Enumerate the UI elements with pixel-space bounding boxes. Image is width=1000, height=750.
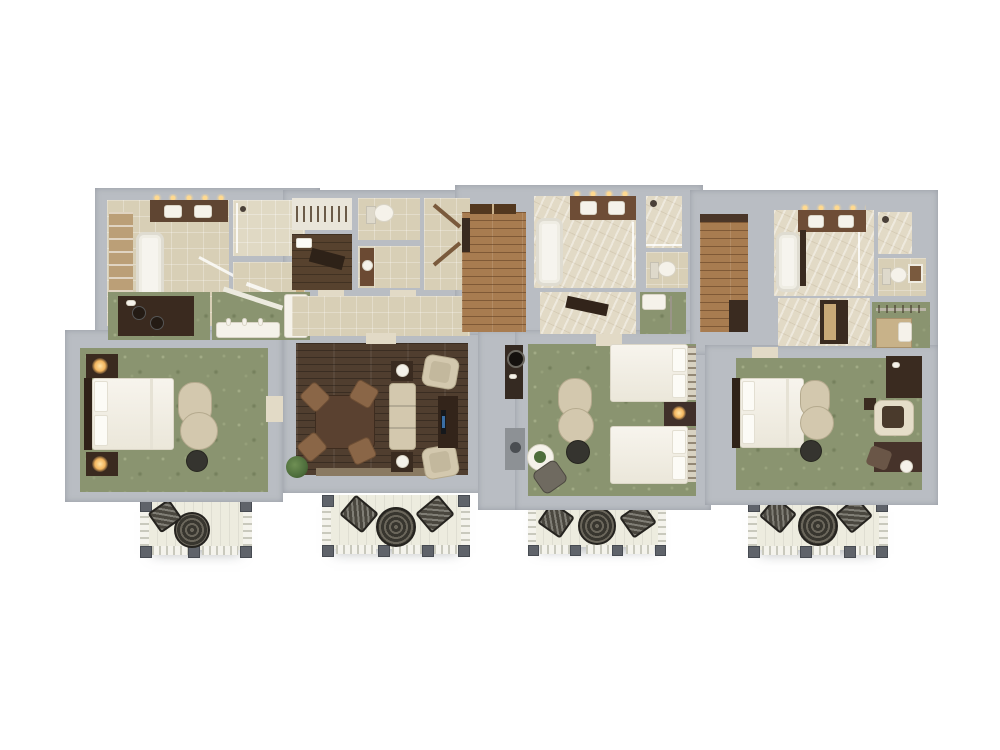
pillow <box>672 430 686 454</box>
sink <box>608 201 625 215</box>
balcony-post <box>140 546 152 558</box>
pillow <box>94 415 108 446</box>
faucet <box>242 318 247 326</box>
balcony-left <box>140 500 252 558</box>
balcony-post <box>800 546 812 558</box>
balcony-railing <box>658 505 666 549</box>
ottoman <box>186 450 208 472</box>
shower-head <box>240 206 246 212</box>
balcony-railing <box>762 546 798 555</box>
ottoman <box>566 440 590 464</box>
balcony-post <box>458 545 470 557</box>
sink <box>194 205 212 218</box>
armchair-cushion <box>428 450 451 473</box>
table-lamp <box>396 455 409 468</box>
pillow <box>672 456 686 480</box>
dresser <box>886 356 922 398</box>
pillow <box>94 381 108 412</box>
door-opening <box>752 347 778 358</box>
hangers <box>878 305 924 313</box>
balcony-post <box>240 546 252 558</box>
balcony-railing <box>202 546 238 555</box>
sink <box>362 260 373 271</box>
dresser-basin <box>150 316 164 330</box>
console <box>462 218 470 252</box>
cabinet <box>642 294 666 310</box>
chaise-lounge <box>558 408 594 444</box>
potted-plant <box>286 456 308 478</box>
chaise-lounge <box>800 406 834 440</box>
toilet <box>658 261 676 277</box>
entry-double-door <box>700 214 748 222</box>
shower-glass <box>236 203 238 253</box>
toilet <box>374 204 394 222</box>
burner <box>507 350 525 368</box>
duvet-fold <box>150 379 153 449</box>
balcony-railing <box>540 545 574 554</box>
balcony-table <box>798 506 838 546</box>
shower-head <box>882 216 889 223</box>
shower-glass <box>646 244 682 246</box>
balcony-post <box>528 545 539 556</box>
counter-item <box>509 374 517 379</box>
dresser-item <box>892 362 900 368</box>
counter-sink <box>510 442 521 453</box>
balcony-railing <box>336 545 376 554</box>
wardrobe-interior <box>824 304 836 340</box>
balcony-railing <box>528 505 536 549</box>
hanging-clothes <box>296 206 348 222</box>
bathtub <box>776 232 800 292</box>
balcony-middle <box>528 505 666 555</box>
door-opening <box>318 290 344 296</box>
dresser-basin <box>132 306 146 320</box>
sink <box>164 205 182 218</box>
duvet-fold <box>786 379 789 447</box>
vanity-counter <box>150 200 228 222</box>
sofa-cushion-line <box>389 427 416 429</box>
balcony-living <box>322 493 470 557</box>
balcony-post <box>570 545 581 556</box>
sink <box>808 215 824 228</box>
armchair-cushion <box>882 406 904 428</box>
balcony-table <box>376 507 416 547</box>
balcony-table <box>578 507 616 545</box>
toilet <box>890 267 907 283</box>
door-opening <box>390 290 416 296</box>
balcony-post <box>422 545 434 557</box>
sofa-cushion-line <box>389 405 416 407</box>
room-entry-hall <box>292 296 470 336</box>
safe <box>898 322 912 342</box>
pillow <box>672 348 686 372</box>
shower-head <box>650 200 657 207</box>
pillow <box>742 414 755 444</box>
balcony-post <box>378 545 390 557</box>
headboard <box>732 378 740 448</box>
plant <box>534 451 546 463</box>
balcony-right <box>748 500 888 558</box>
headboard <box>688 428 696 482</box>
balcony-railing <box>152 546 188 555</box>
faucet <box>226 318 231 326</box>
stool <box>900 460 913 473</box>
room-corridor-middle <box>462 212 526 332</box>
headboard <box>688 346 696 400</box>
balcony-post <box>322 545 334 557</box>
balcony-railing <box>812 546 840 555</box>
hanging-rail <box>670 296 672 330</box>
door-split <box>492 204 494 214</box>
pillow <box>742 381 755 411</box>
balcony-railing <box>434 545 460 554</box>
lamp <box>672 406 686 420</box>
room-dressing-middle <box>540 292 636 334</box>
sofa <box>389 383 416 450</box>
bathtub <box>536 218 563 286</box>
balcony-post <box>655 545 666 556</box>
partition <box>800 230 806 286</box>
balcony-post <box>322 495 334 507</box>
lamp <box>92 456 108 472</box>
towel-shelves <box>109 212 133 292</box>
faucet <box>258 318 263 326</box>
door-opening <box>366 333 396 344</box>
balcony-post <box>876 546 888 558</box>
lamp <box>92 358 108 374</box>
pillow <box>672 374 686 398</box>
chaise-lounge <box>180 412 218 450</box>
cabinet <box>729 300 748 332</box>
balcony-railing <box>626 545 654 554</box>
balcony-post <box>458 495 470 507</box>
headboard <box>84 378 92 450</box>
table-lamp <box>396 364 409 377</box>
glass-partition <box>632 222 634 280</box>
tv-picture <box>442 416 445 428</box>
balcony-post <box>612 545 623 556</box>
floor-plan <box>0 0 1000 750</box>
balcony-post <box>844 546 856 558</box>
door-opening <box>266 396 283 422</box>
glass-panel <box>858 232 860 288</box>
sink <box>580 201 597 215</box>
dresser-item <box>126 300 136 306</box>
ottoman <box>800 440 822 462</box>
framed-picture <box>908 264 923 283</box>
sink <box>838 215 854 228</box>
armchair-cushion <box>428 360 451 383</box>
balcony-post <box>748 546 760 558</box>
cushion <box>296 238 312 248</box>
